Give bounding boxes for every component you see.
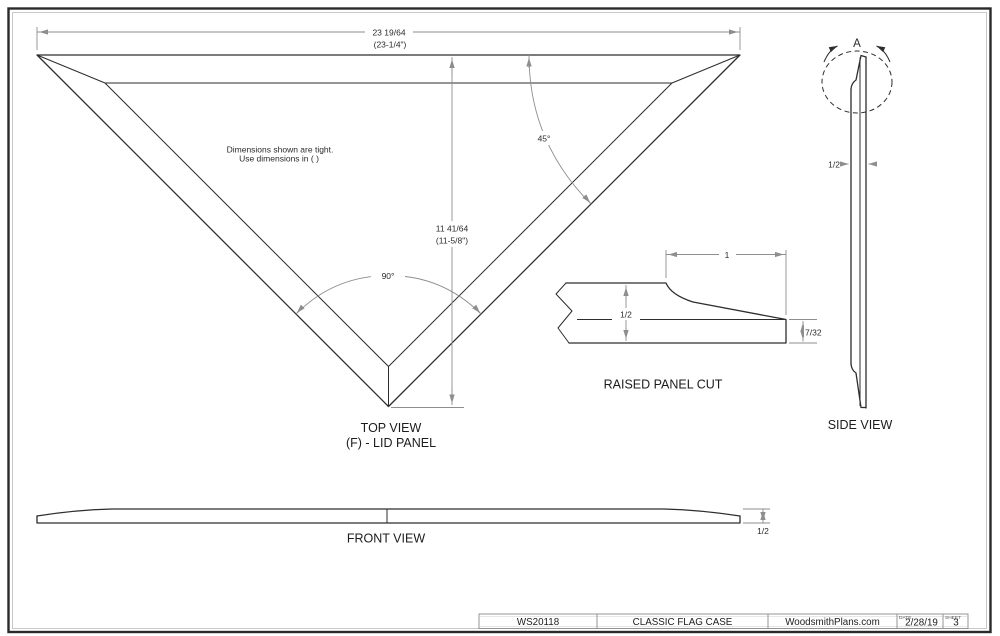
- height-dimension: 11 41/64 (11-5/8"): [391, 57, 481, 408]
- angle-90-dimension: 90°: [296, 268, 481, 314]
- side-view-label: SIDE VIEW: [828, 418, 893, 432]
- drawing-sheet: 23 19/64 (23-1/4") 11 41/64 (11-5/8") 45…: [0, 0, 1000, 636]
- source-website: WoodsmithPlans.com: [785, 617, 880, 628]
- detail-letter: A: [853, 38, 861, 50]
- arrow-bottom: [586, 198, 590, 203]
- plan-title: CLASSIC FLAG CASE: [633, 617, 733, 628]
- panel-profile: [566, 283, 786, 343]
- page-border: [9, 9, 991, 633]
- break-line: [556, 283, 572, 343]
- width-dim-paren-text: (23-1/4"): [374, 40, 407, 50]
- detail-circle: [822, 51, 892, 113]
- callout-arrow-left: [824, 46, 838, 62]
- border-outer: [9, 9, 991, 633]
- bottom-bevel-profile: [851, 364, 866, 408]
- top-view-label: TOP VIEW: [361, 421, 422, 435]
- panel-top-outline: [37, 509, 740, 516]
- angle-45-text: 45°: [538, 134, 551, 144]
- thickness-dimension: 1/2: [743, 509, 770, 536]
- dimension-note: Dimensions shown are tight. Use dimensio…: [227, 145, 334, 164]
- drawing-canvas: 23 19/64 (23-1/4") 11 41/64 (11-5/8") 45…: [0, 0, 1000, 636]
- raised-panel-cut-label: RAISED PANEL CUT: [604, 378, 723, 392]
- callout-arrow-right: [877, 46, 891, 62]
- angle-45-dimension: 45°: [529, 55, 591, 204]
- arrow-left: [297, 309, 301, 313]
- front-view: 1/2 FRONT VIEW: [37, 509, 770, 546]
- panel-bottom-outline: [37, 516, 740, 523]
- thickness-text: 1/2: [620, 310, 632, 320]
- sheet-number: 3: [953, 618, 959, 629]
- top-bevel-profile: [851, 56, 866, 90]
- edge-dimension: 7/32: [789, 320, 827, 344]
- angle-arc: [529, 55, 591, 204]
- edge-dim-text: 7/32: [805, 328, 822, 338]
- note-line2: Use dimensions in ( ): [239, 154, 319, 164]
- date-value: 2/28/19: [905, 618, 938, 629]
- bevel-shoulder-lines: [105, 83, 672, 367]
- front-view-label: FRONT VIEW: [347, 532, 425, 546]
- side-view: A 1/2 SIDE VIEW: [822, 38, 892, 432]
- bevel-width-text: 1: [725, 250, 730, 260]
- thickness-dimension: 1/2: [612, 285, 640, 341]
- arrow-right: [477, 309, 481, 313]
- miter-lines: [37, 55, 740, 407]
- width-dimension: 23 19/64 (23-1/4"): [37, 26, 740, 50]
- height-dim-text: 11 41/64: [436, 224, 469, 234]
- plan-number: WS20118: [517, 617, 560, 628]
- thickness-text: 1/2: [757, 526, 769, 536]
- bevel-width-dimension: 1: [666, 248, 786, 315]
- panel-edges: [851, 57, 866, 408]
- thickness-text: 1/2: [828, 160, 840, 170]
- width-dim-text: 23 19/64: [372, 28, 405, 38]
- border-inner: [13, 13, 987, 629]
- title-block: WS20118 CLASSIC FLAG CASE WoodsmithPlans…: [479, 614, 968, 629]
- raised-panel-cut-view: 1 1/2 7/32 RAISED PANEL CUT: [556, 248, 827, 392]
- lid-panel-outline: [37, 55, 740, 407]
- extension-lines: [743, 509, 770, 523]
- top-view-sublabel: (F) - LID PANEL: [346, 436, 436, 450]
- angle-90-text: 90°: [382, 271, 395, 281]
- height-dim-paren-text: (11-5/8"): [436, 236, 468, 246]
